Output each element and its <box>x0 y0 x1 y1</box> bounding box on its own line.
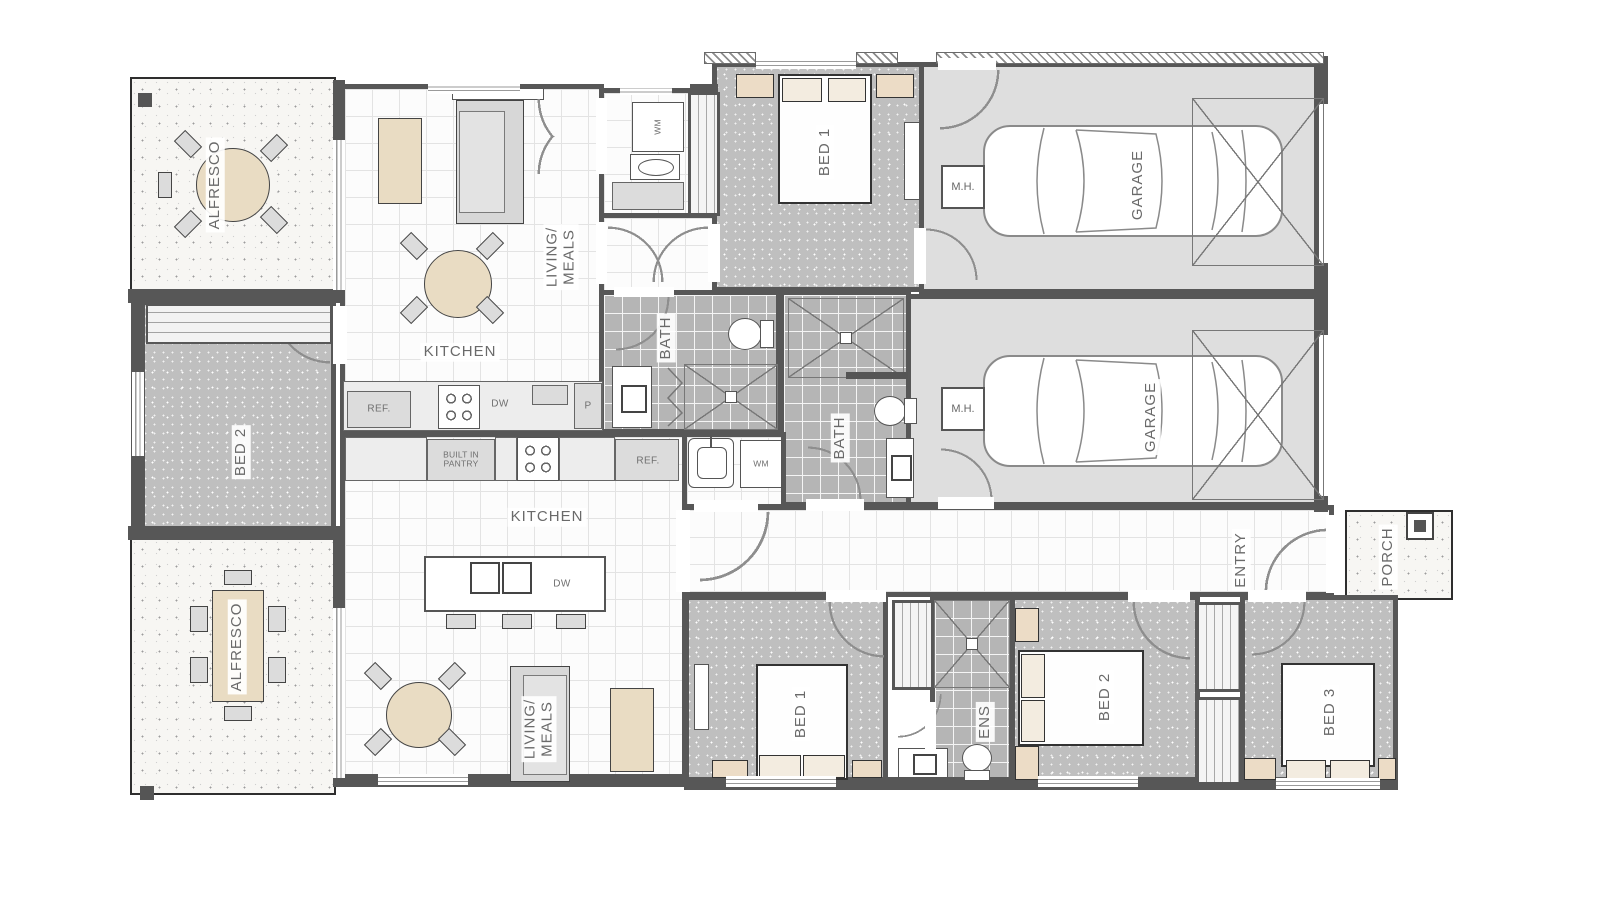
door-gap <box>826 590 886 602</box>
pillow <box>803 755 845 778</box>
boundary-hatch <box>856 52 898 64</box>
pillow <box>1021 654 1045 698</box>
label-bed2-lower: BED 2 <box>1096 670 1115 724</box>
door-gap <box>708 224 720 282</box>
room-hall-upper <box>599 213 717 295</box>
label-pantry-upper: P <box>584 401 591 412</box>
toilet-tank <box>904 398 917 424</box>
coffee-table <box>378 118 422 204</box>
dresser <box>694 664 709 730</box>
garage-door-panel <box>1192 330 1324 500</box>
label-dw-lower: DW <box>553 579 570 590</box>
door-gap <box>333 306 347 364</box>
kitchen-bench <box>345 437 427 481</box>
pillow <box>759 755 801 778</box>
window <box>726 776 836 787</box>
label-ref-upper: REF. <box>367 404 390 415</box>
manhole-marker: M.H. <box>941 165 985 209</box>
bedside-table <box>1015 608 1039 642</box>
post <box>140 786 154 800</box>
window <box>620 86 672 95</box>
sliding-door <box>333 608 345 706</box>
pillow <box>1021 700 1045 742</box>
floor-plan: M.H. M.H. <box>0 0 1600 900</box>
door-gap <box>1248 590 1306 602</box>
label-living-meals-lower: LIVING/ MEALS <box>522 696 557 762</box>
label-bed2-upper: BED 2 <box>232 425 251 479</box>
chair <box>224 570 252 585</box>
label-ref-lower: REF. <box>636 456 659 467</box>
room-porch <box>1345 510 1453 600</box>
vanity <box>886 438 914 498</box>
label-bath-lower: BATH <box>831 414 850 463</box>
stool <box>502 614 532 629</box>
bedside-table <box>1015 746 1039 780</box>
chair <box>268 657 286 683</box>
bedside-table <box>876 74 914 98</box>
door-gap <box>925 702 936 754</box>
label-built-in-pantry: BUILT IN PANTRY <box>443 451 479 470</box>
bedside-table <box>1244 758 1276 780</box>
bedside-table <box>736 74 774 98</box>
label-bath-upper: BATH <box>657 314 676 363</box>
sliding-door <box>333 196 345 290</box>
chair <box>190 606 208 632</box>
linen-cupboard <box>612 182 684 210</box>
wall <box>333 537 345 612</box>
door-gap <box>914 228 926 284</box>
robe-bed2-upper <box>146 304 332 344</box>
window <box>333 140 345 198</box>
stool <box>446 614 476 629</box>
cooktop-icon <box>517 437 559 481</box>
label-alfresco-upper: ALFRESCO <box>206 138 225 233</box>
bedside-table <box>852 760 882 778</box>
porch-column-core <box>1414 520 1426 532</box>
tap-icon <box>710 435 712 447</box>
garage-door-panel <box>1192 98 1324 266</box>
chair <box>190 657 208 683</box>
vanity <box>612 366 652 428</box>
basin-icon <box>621 385 647 413</box>
door-gap <box>806 499 864 511</box>
opening <box>676 510 690 592</box>
toilet-icon <box>874 396 906 426</box>
laundry-tub <box>630 154 680 180</box>
pillow <box>828 78 866 102</box>
vanity <box>898 748 948 778</box>
wall <box>128 289 340 303</box>
wall <box>128 526 340 540</box>
window <box>132 372 144 456</box>
shower-icon <box>788 298 904 378</box>
window <box>428 84 520 94</box>
chair <box>224 706 252 721</box>
label-dw-upper: DW <box>491 399 508 410</box>
window <box>378 774 468 785</box>
label-wm-upper: WM <box>653 119 662 135</box>
shower-icon <box>684 364 778 430</box>
sink-icon <box>502 562 532 594</box>
wall <box>1314 263 1328 335</box>
window <box>756 58 856 69</box>
laundry-tub <box>688 438 734 488</box>
label-kitchen-upper: KITCHEN <box>421 343 500 362</box>
sofa-seat <box>459 111 505 213</box>
porch-column <box>1406 512 1434 540</box>
basin-icon <box>891 455 912 481</box>
label-bed1-lower: BED 1 <box>792 687 811 741</box>
sofa <box>456 100 524 224</box>
coffee-table <box>610 688 654 772</box>
label-porch: PORCH <box>1379 524 1398 589</box>
robe-bed2-lower <box>1196 602 1242 692</box>
label-kitchen-lower: KITCHEN <box>508 508 587 527</box>
kitchen-bench <box>495 437 517 481</box>
boundary-hatch <box>704 52 756 64</box>
robe-bed1-lower <box>892 600 934 690</box>
label-wm-lower: WM <box>753 459 769 468</box>
door-gap <box>1128 590 1190 602</box>
kitchen-bench <box>559 437 615 481</box>
shower-screen <box>846 372 908 379</box>
label-bed3-lower: BED 3 <box>1321 685 1340 739</box>
door-gap <box>938 497 994 509</box>
label-ensuite: ENS <box>976 702 995 742</box>
window <box>1038 776 1138 787</box>
toilet-icon <box>728 318 762 350</box>
chair <box>268 606 286 632</box>
door-gap <box>694 500 758 512</box>
label-entry: ENTRY <box>1232 529 1251 591</box>
robe-bed1-upper <box>688 92 720 216</box>
stool <box>556 614 586 629</box>
tub-basin <box>638 159 674 176</box>
label-garage-lower: GARAGE <box>1142 379 1161 455</box>
shower-icon <box>934 600 1010 688</box>
door-gap <box>938 58 996 70</box>
door-gap <box>614 287 674 297</box>
manhole-marker: M.H. <box>941 387 985 431</box>
label-garage-upper: GARAGE <box>1129 147 1148 223</box>
sink-icon <box>470 562 500 594</box>
door-gap <box>596 98 607 174</box>
basin-icon <box>913 754 937 775</box>
post <box>138 93 152 107</box>
toilet-tank <box>964 770 990 781</box>
pillow <box>782 78 822 102</box>
toilet-tank <box>760 320 774 348</box>
label-living-meals-upper: LIVING/ MEALS <box>544 224 579 290</box>
label-alfresco-lower: ALFRESCO <box>228 600 247 695</box>
chair <box>158 172 172 198</box>
toilet-icon <box>962 744 992 772</box>
bench-appliance <box>532 385 568 405</box>
window <box>1276 778 1380 789</box>
door-gap <box>596 222 607 284</box>
bedside-table <box>1378 758 1396 780</box>
robe-bed3 <box>1196 697 1242 785</box>
shower-screen-bifold <box>666 366 684 428</box>
label-bed1-upper: BED 1 <box>816 125 835 179</box>
cooktop-icon <box>438 385 480 429</box>
dresser <box>904 122 920 200</box>
front-door-gap <box>1326 515 1340 593</box>
tub-basin <box>697 447 727 479</box>
